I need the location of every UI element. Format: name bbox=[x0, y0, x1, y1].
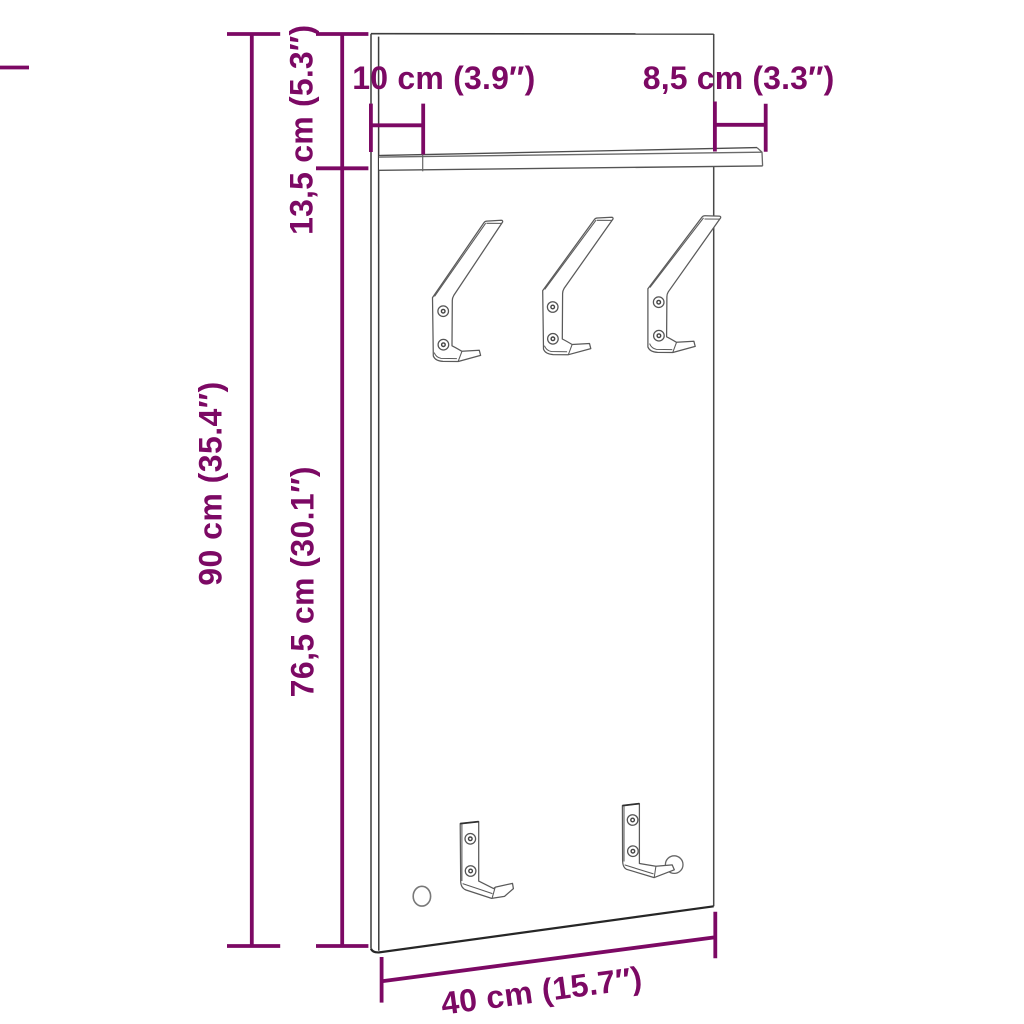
svg-text:13,5 cm (5.3″): 13,5 cm (5.3″) bbox=[284, 25, 320, 235]
svg-text:90 cm (35.4″): 90 cm (35.4″) bbox=[193, 381, 229, 585]
svg-text:76,5 cm (30.1″): 76,5 cm (30.1″) bbox=[284, 466, 320, 697]
svg-text:10 cm (3.9″): 10 cm (3.9″) bbox=[352, 60, 535, 96]
svg-text:8,5 cm (3.3″): 8,5 cm (3.3″) bbox=[643, 60, 835, 96]
